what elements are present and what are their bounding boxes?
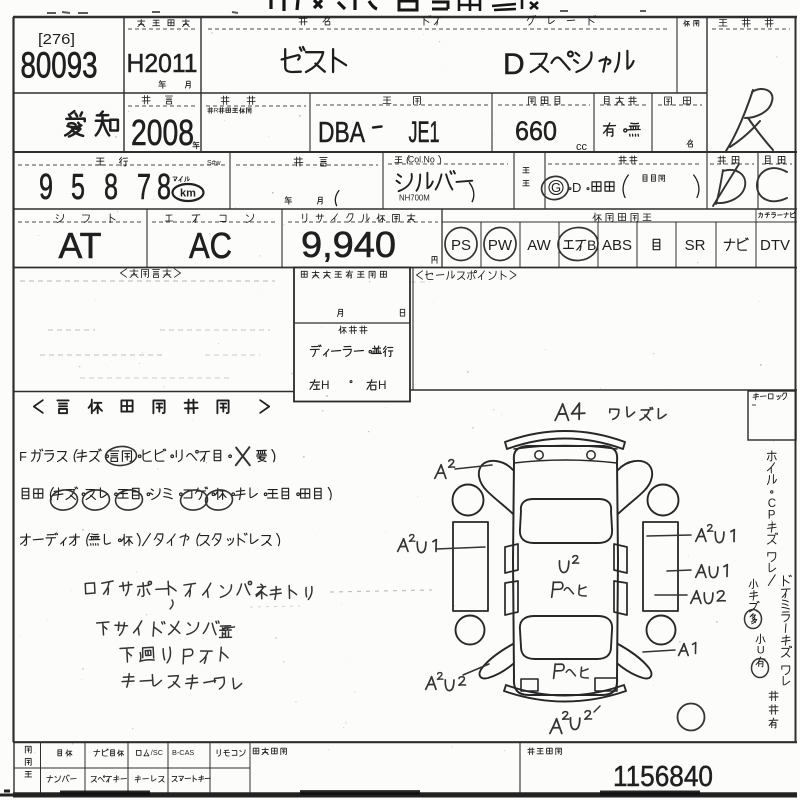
svg-text:1156840: 1156840 [613,761,713,793]
svg-text:H: H [378,378,387,392]
svg-text:AC: AC [189,225,232,266]
svg-text:D: D [503,48,525,81]
svg-text:B: B [587,237,596,253]
svg-text:7: 7 [137,166,151,207]
svg-text:U: U [757,645,765,657]
svg-text:DBA: DBA [318,117,366,149]
svg-text:/SC: /SC [151,748,163,757]
svg-text:D: D [572,180,581,195]
svg-text:PS: PS [451,237,471,254]
svg-text:Col.No: Col.No [408,154,435,164]
svg-text:R: R [214,107,219,114]
svg-text:S#w: S#w [207,160,222,167]
svg-text:cc: cc [576,141,588,153]
svg-text:9: 9 [39,166,53,207]
svg-text:8: 8 [104,166,118,207]
svg-text:NH700M: NH700M [399,194,430,203]
svg-text:AT: AT [59,225,102,266]
svg-text:ABS: ABS [602,237,632,254]
svg-text:9,940: 9,940 [301,224,396,265]
svg-text:5: 5 [71,166,85,207]
svg-text:80093: 80093 [21,45,98,86]
svg-text:660: 660 [515,116,557,146]
svg-text:PW: PW [488,237,513,254]
svg-text:C: C [768,498,776,510]
svg-text:8: 8 [157,166,171,207]
svg-text:P: P [768,510,776,522]
svg-text:JE1: JE1 [409,116,440,149]
svg-text:H2011: H2011 [127,48,198,78]
svg-text:SR: SR [685,237,706,254]
svg-text:F: F [19,449,27,464]
svg-text:B-CAS: B-CAS [172,748,194,757]
svg-text:AW: AW [527,237,551,254]
svg-text:DTV: DTV [760,237,790,254]
svg-text:km: km [180,188,196,200]
svg-text:2008: 2008 [131,112,194,153]
svg-text:H: H [321,378,330,392]
svg-text:G: G [551,180,561,195]
